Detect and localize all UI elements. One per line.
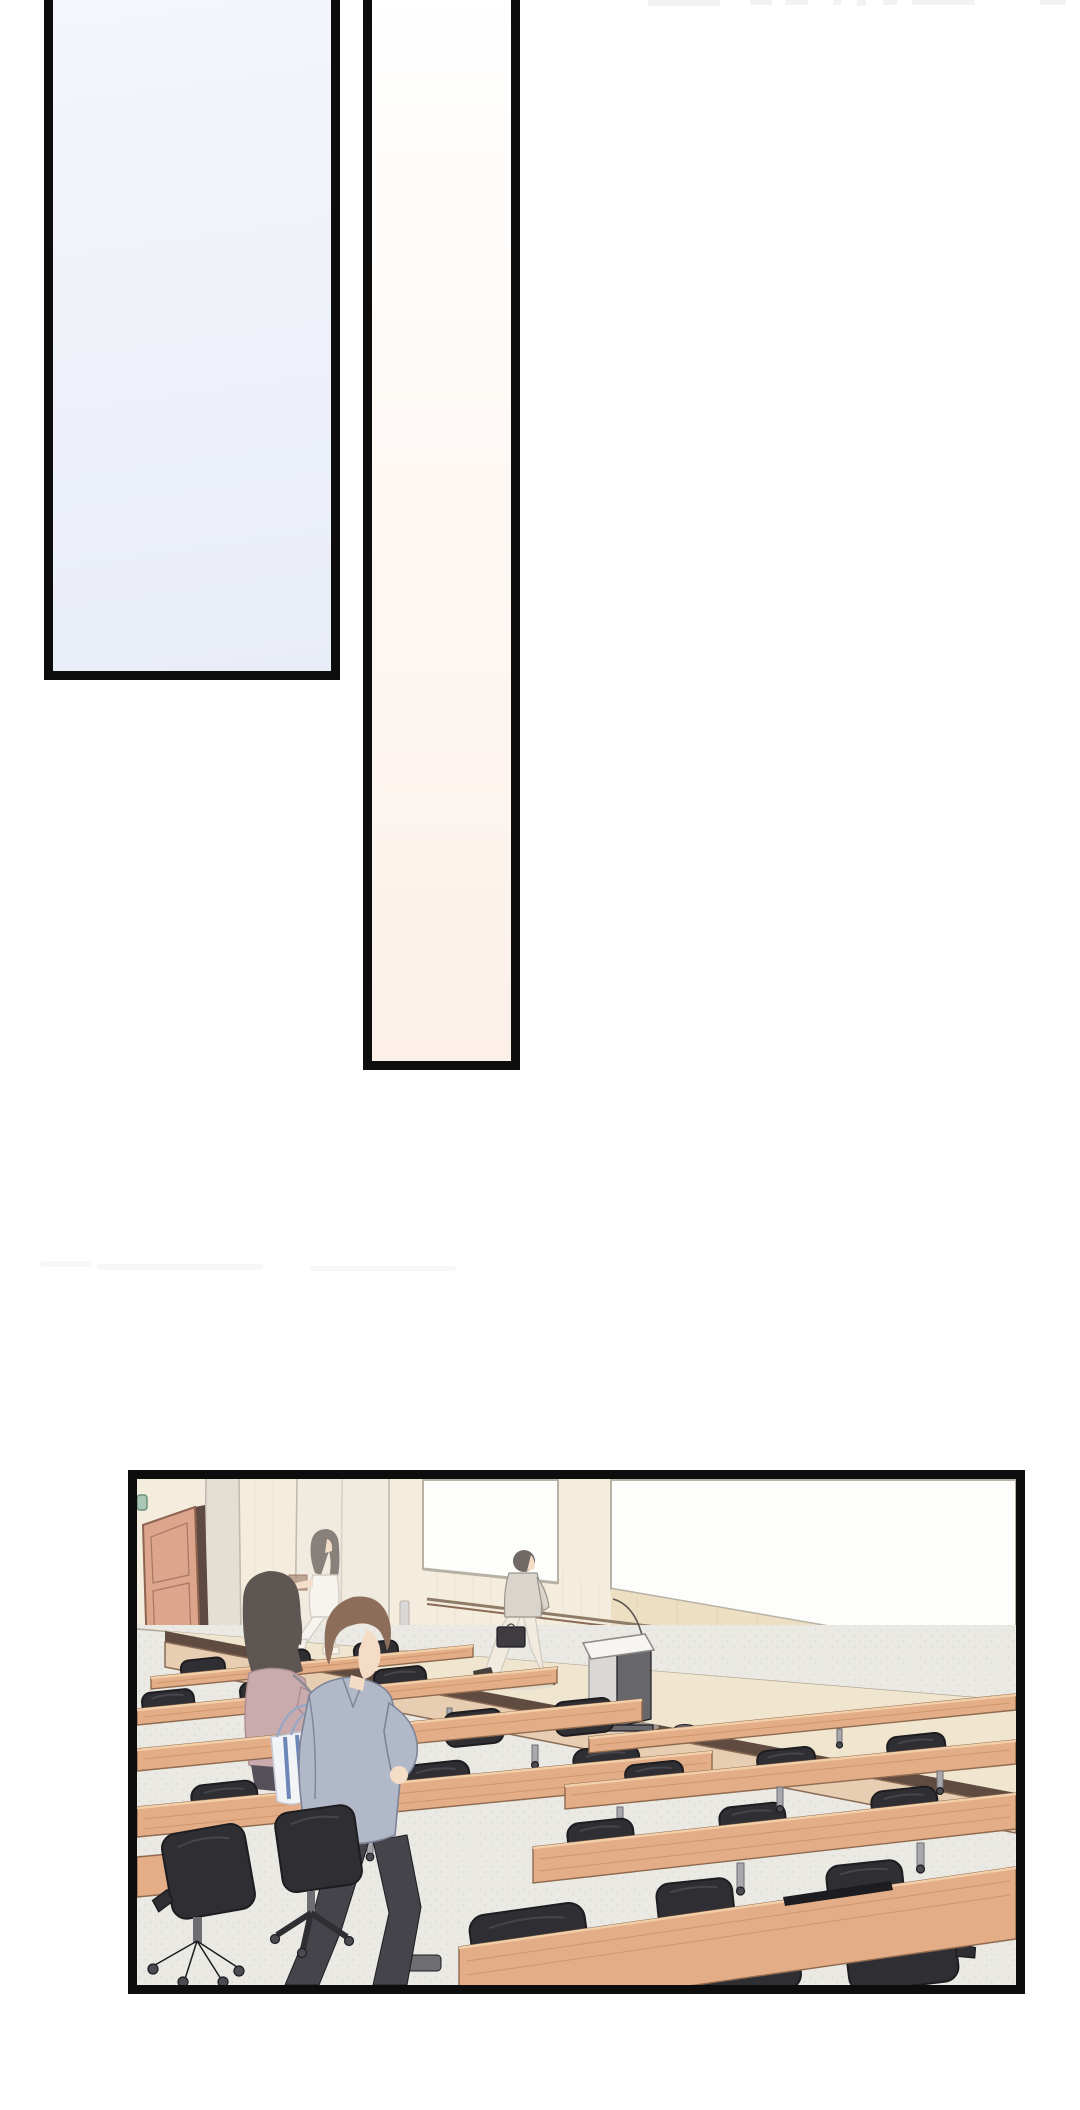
exit-sign [137, 1495, 147, 1510]
faint-streak [40, 1261, 92, 1267]
walking-man-hand [390, 1766, 408, 1784]
cropped-artifact [1040, 0, 1066, 5]
cropped-artifact [857, 0, 866, 6]
wall-column-narrow [204, 1479, 241, 1639]
panel-tall-pink [363, 0, 520, 1070]
faint-streak [310, 1266, 456, 1271]
faint-streak [96, 1264, 264, 1270]
cropped-artifact [785, 0, 808, 5]
lecture-hall-illustration [137, 1479, 1016, 1985]
panel-tall-blue [44, 0, 340, 680]
cropped-artifact [648, 0, 720, 6]
cropped-artifact [912, 0, 975, 5]
panel-lecture-hall [128, 1470, 1025, 1994]
comic-page [0, 0, 1080, 2110]
light-switch [400, 1601, 409, 1628]
cropped-artifact [750, 0, 772, 5]
briefcase [497, 1627, 525, 1647]
cropped-artifact [883, 0, 897, 5]
stage-man-shirt [505, 1573, 542, 1617]
seated-woman-hair [243, 1571, 303, 1677]
cropped-artifact [833, 0, 841, 5]
